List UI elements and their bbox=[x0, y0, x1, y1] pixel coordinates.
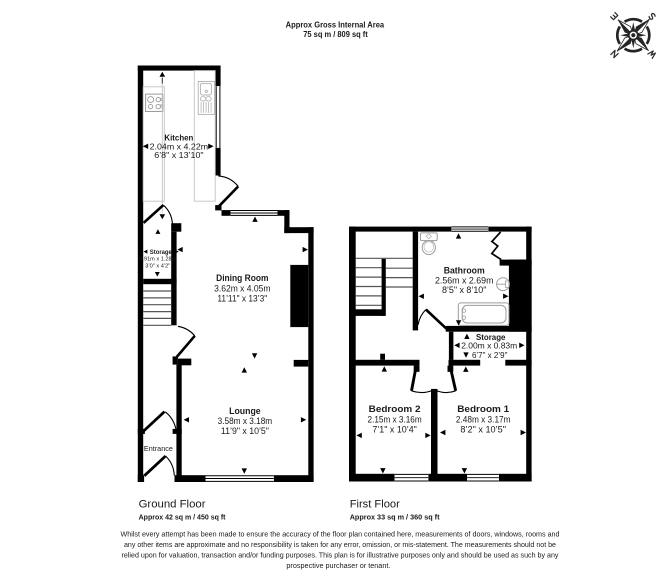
svg-text:Ground Floor: Ground Floor bbox=[139, 498, 206, 510]
svg-text:3.62m x 4.05m: 3.62m x 4.05m bbox=[214, 283, 270, 293]
svg-text:Entrance: Entrance bbox=[144, 444, 173, 453]
svg-text:3.58m x 3.18m: 3.58m x 3.18m bbox=[218, 416, 273, 426]
svg-text:0.91m x 1.28m: 0.91m x 1.28m bbox=[139, 257, 176, 263]
svg-text:Storage: Storage bbox=[150, 250, 173, 256]
svg-text:relied upon for valuation, tra: relied upon for valuation, transaction a… bbox=[122, 552, 560, 559]
svg-text:11’11" x 13’3": 11’11" x 13’3" bbox=[217, 293, 267, 303]
svg-text:any other items are approximat: any other items are approximate and no r… bbox=[124, 542, 556, 549]
svg-text:3’0" x 4’2": 3’0" x 4’2" bbox=[145, 263, 170, 269]
svg-text:prospective purchaser or tenan: prospective purchaser or tenant. bbox=[286, 563, 390, 570]
svg-text:11’9" x 10’5": 11’9" x 10’5" bbox=[221, 426, 269, 436]
svg-text:Bathroom: Bathroom bbox=[444, 266, 485, 276]
svg-text:Whilst every attempt has been: Whilst every attempt has been made to en… bbox=[121, 532, 560, 539]
svg-text:8’5" x 8’10": 8’5" x 8’10" bbox=[442, 285, 487, 295]
svg-text:Bedroom 2: Bedroom 2 bbox=[369, 404, 421, 414]
svg-text:2.15m x 3.16m: 2.15m x 3.16m bbox=[368, 415, 422, 425]
svg-text:Bedroom 1: Bedroom 1 bbox=[457, 404, 509, 414]
svg-text:2.56m x 2.69m: 2.56m x 2.69m bbox=[435, 276, 494, 286]
svg-text:First Floor: First Floor bbox=[350, 498, 400, 510]
svg-text:Approx 42 sq m / 450 sq ft: Approx 42 sq m / 450 sq ft bbox=[139, 513, 226, 522]
svg-text:2.48m x 3.17m: 2.48m x 3.17m bbox=[456, 415, 511, 425]
svg-text:Lounge: Lounge bbox=[229, 406, 261, 416]
svg-text:Dining Room: Dining Room bbox=[216, 273, 268, 283]
svg-text:8’2" x 10’5": 8’2" x 10’5" bbox=[460, 424, 506, 434]
svg-text:6’7" x 2’9": 6’7" x 2’9" bbox=[472, 350, 508, 360]
svg-text:2.00m x 0.83m: 2.00m x 0.83m bbox=[461, 340, 517, 350]
svg-text:75 sq m / 809 sq ft: 75 sq m / 809 sq ft bbox=[303, 30, 368, 39]
svg-text:6’8" x 13’10": 6’8" x 13’10" bbox=[154, 150, 203, 160]
svg-text:7’1" x 10’4": 7’1" x 10’4" bbox=[372, 424, 417, 434]
svg-text:Approx 33 sq m / 360 sq ft: Approx 33 sq m / 360 sq ft bbox=[350, 513, 440, 522]
svg-text:Approx Gross Internal Area: Approx Gross Internal Area bbox=[286, 21, 385, 30]
